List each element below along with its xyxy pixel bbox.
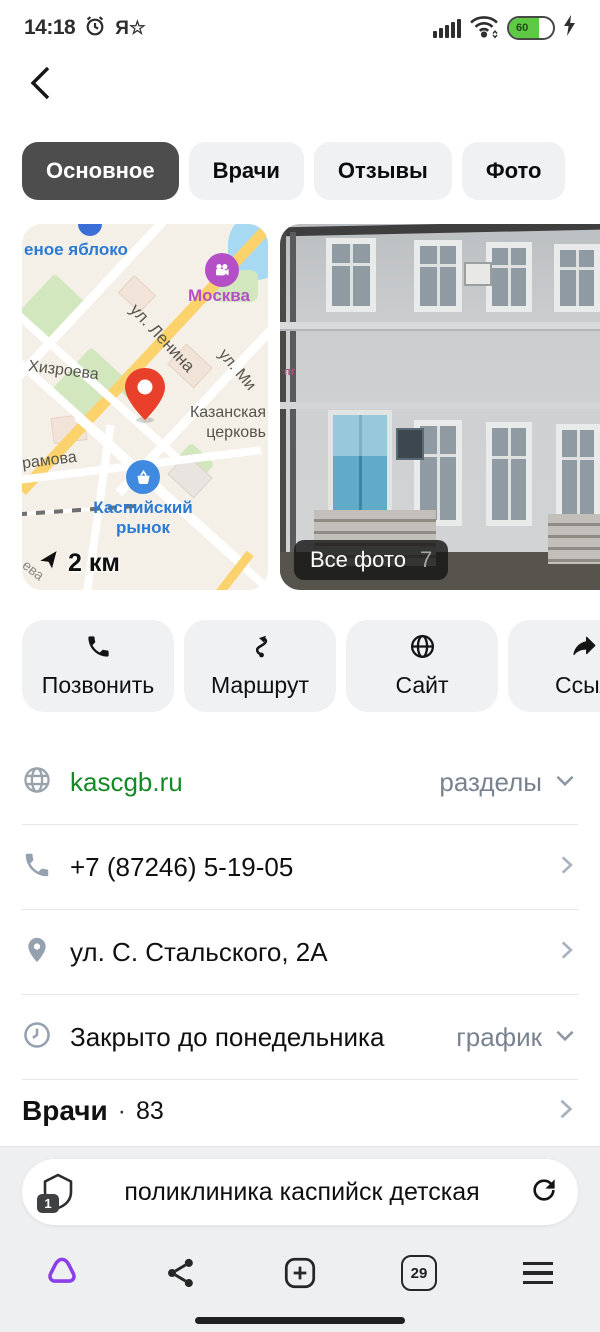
- yandex-triangle-icon: [41, 1252, 83, 1294]
- share-arrow-icon: [571, 633, 598, 665]
- ac-unit: [464, 262, 492, 286]
- alarm-icon: [83, 14, 107, 43]
- status-bar: 14:18 Я☆ 60: [0, 0, 600, 56]
- chevron-right-icon: [552, 1096, 578, 1127]
- place-photo[interactable]: пг Все фото 7: [280, 224, 600, 590]
- map-label-market-2: рынок: [82, 518, 204, 538]
- phone-row[interactable]: +7 (87246) 5-19-05: [0, 825, 600, 909]
- schedule-expander-label[interactable]: график: [456, 1022, 542, 1053]
- browser-nav-bar: 29: [0, 1241, 600, 1305]
- map-poi-store-icon: [78, 224, 102, 236]
- tab-main[interactable]: Основное: [22, 142, 179, 200]
- tab-doctors[interactable]: Врачи: [189, 142, 304, 200]
- menu-button[interactable]: [516, 1251, 560, 1295]
- home-indicator[interactable]: [195, 1317, 405, 1324]
- tabs-button[interactable]: 29: [397, 1251, 441, 1295]
- chevron-down-icon[interactable]: [552, 767, 578, 798]
- clock-icon: [22, 1020, 52, 1055]
- chevron-down-icon[interactable]: [552, 1022, 578, 1053]
- plus-square-icon: [281, 1254, 319, 1292]
- route-icon: [247, 633, 274, 665]
- doctors-title: Врачи: [22, 1095, 108, 1127]
- share-nodes-icon: [162, 1254, 200, 1292]
- back-button[interactable]: [18, 62, 62, 108]
- action-buttons: Позвонить Маршрут Сайт Ссыл: [22, 620, 600, 712]
- route-button[interactable]: Маршрут: [184, 620, 336, 712]
- tab-photos[interactable]: Фото: [462, 142, 566, 200]
- hours-status: Закрыто до понедельника: [70, 1022, 384, 1053]
- browser-bottom-panel: 1 поликлиника каспийск детская 29: [0, 1146, 600, 1332]
- doctors-count: 83: [136, 1097, 164, 1126]
- battery-percent: 60: [516, 22, 528, 34]
- search-query[interactable]: поликлиника каспийск детская: [76, 1178, 528, 1207]
- all-photos-badge[interactable]: Все фото 7: [294, 540, 448, 580]
- wall-marking: пг: [284, 366, 295, 378]
- globe-icon: [409, 633, 436, 665]
- website-button[interactable]: Сайт: [346, 620, 498, 712]
- photo-count: 7: [420, 547, 432, 573]
- map-label-cinema: Москва: [188, 286, 250, 306]
- pin-icon: [22, 935, 52, 970]
- yandex-notification-icon: Я☆: [115, 17, 146, 40]
- media-row: еное яблоко Москва ул. Ленина Хизроева у…: [22, 224, 600, 590]
- map-label-market-1: Каспийский: [82, 498, 204, 518]
- map-poi-market-icon: [126, 460, 160, 494]
- building-sign: [396, 428, 424, 460]
- address-text: ул. С. Стальского, 2А: [70, 937, 328, 968]
- navigation-arrow-icon: [38, 549, 60, 578]
- refresh-icon[interactable]: [528, 1174, 560, 1211]
- new-tab-button[interactable]: [278, 1251, 322, 1295]
- tab-count-badge: 1: [37, 1194, 59, 1213]
- map-label-store: еное яблоко: [24, 240, 128, 260]
- wifi-icon: [469, 13, 499, 44]
- globe-icon: [22, 765, 52, 800]
- tabs-count-square: 29: [401, 1255, 437, 1291]
- website-link[interactable]: kascgb.ru: [70, 767, 183, 798]
- doctors-section-header[interactable]: Врачи · 83: [0, 1076, 600, 1146]
- signal-icon: [433, 18, 461, 38]
- hours-row[interactable]: Закрыто до понедельника график: [0, 995, 600, 1079]
- clock-time: 14:18: [24, 16, 75, 40]
- tab-reviews[interactable]: Отзывы: [314, 142, 452, 200]
- phone-icon: [22, 850, 52, 885]
- website-row[interactable]: kascgb.ru разделы: [0, 740, 600, 824]
- chevron-right-icon: [554, 853, 578, 882]
- omnibox[interactable]: 1 поликлиника каспийск детская: [22, 1159, 578, 1225]
- map-poi-cinema-icon: [205, 253, 239, 287]
- sections-expander-label[interactable]: разделы: [439, 767, 542, 798]
- map-pin-icon: [122, 366, 168, 429]
- info-list: kascgb.ru разделы +7 (87246) 5-19-05 ул.…: [0, 740, 600, 1080]
- chevron-left-icon: [25, 64, 55, 107]
- tab-shield-icon[interactable]: 1: [40, 1172, 76, 1212]
- phone-icon: [85, 633, 112, 665]
- phone-number: +7 (87246) 5-19-05: [70, 852, 293, 883]
- map-label-church-2: церковь: [176, 424, 266, 442]
- battery-icon: 60: [507, 16, 555, 40]
- place-card-tabs: Основное Врачи Отзывы Фото: [22, 142, 565, 200]
- address-row[interactable]: ул. С. Стальского, 2А: [0, 910, 600, 994]
- map-thumbnail[interactable]: еное яблоко Москва ул. Ленина Хизроева у…: [22, 224, 268, 590]
- share-button[interactable]: [159, 1251, 203, 1295]
- map-label-church-1: Казанская: [176, 404, 266, 422]
- charging-bolt-icon: [563, 15, 576, 41]
- map-distance: 2 км: [38, 549, 120, 578]
- call-button[interactable]: Позвонить: [22, 620, 174, 712]
- share-link-button[interactable]: Ссыл: [508, 620, 600, 712]
- yandex-home-button[interactable]: [40, 1251, 84, 1295]
- chevron-right-icon: [554, 938, 578, 967]
